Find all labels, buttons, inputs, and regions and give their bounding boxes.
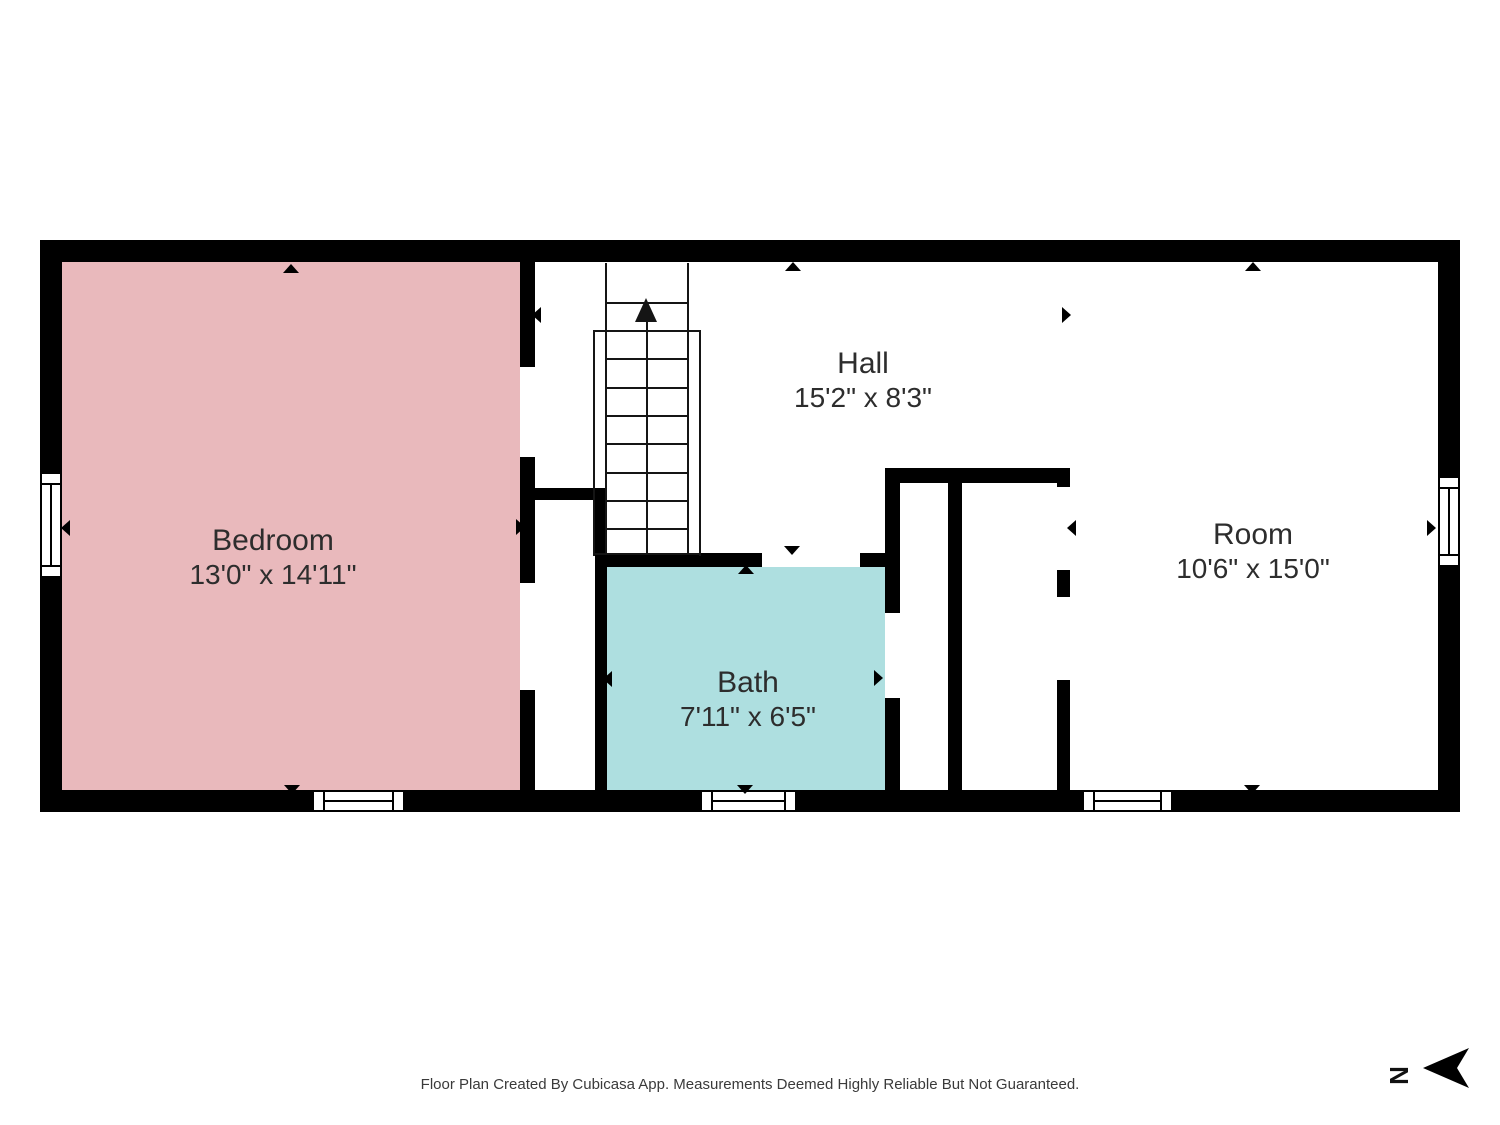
room-name: Bath — [680, 666, 816, 700]
stairs-up-arrow-icon — [635, 298, 657, 322]
room-label-bedroom: Bedroom 13'0" x 14'11" — [189, 524, 356, 592]
opening-arrow — [516, 519, 525, 535]
opening-arrow — [1427, 520, 1436, 536]
window — [312, 790, 405, 812]
window — [1082, 790, 1173, 812]
opening-arrow — [61, 520, 70, 536]
room-name: Bedroom — [189, 524, 356, 558]
room-name: Hall — [794, 347, 932, 381]
disclaimer-text: Floor Plan Created By Cubicasa App. Meas… — [0, 1076, 1500, 1093]
wall — [885, 698, 900, 790]
wall — [948, 482, 962, 790]
room-label-room: Room 10'6" x 15'0" — [1176, 518, 1330, 586]
wall — [885, 468, 900, 613]
wall — [1057, 570, 1070, 597]
room-label-bath: Bath 7'11" x 6'5" — [680, 666, 816, 734]
opening-arrow — [1062, 307, 1071, 323]
opening-arrow — [283, 264, 299, 273]
wall — [520, 690, 535, 790]
staircase — [593, 262, 701, 558]
floor-plan-page: Bedroom 13'0" x 14'11" Hall 15'2" x 8'3"… — [0, 0, 1500, 1125]
opening-arrow — [532, 307, 541, 323]
opening-arrow — [1244, 785, 1260, 794]
opening-arrow — [874, 670, 883, 686]
room-dimensions: 7'11" x 6'5" — [680, 700, 816, 734]
stairs-direction-line — [646, 320, 648, 554]
opening-arrow — [784, 546, 800, 555]
opening-arrow — [737, 785, 753, 794]
opening-arrow — [1067, 520, 1076, 536]
wall — [1057, 680, 1070, 790]
room-dimensions: 13'0" x 14'11" — [189, 558, 356, 592]
opening-arrow — [738, 565, 754, 574]
opening-arrow — [603, 671, 612, 687]
wall — [885, 468, 1070, 483]
opening-arrow — [1245, 262, 1261, 271]
wall — [1057, 468, 1070, 487]
wall — [40, 240, 1460, 262]
room-name: Room — [1176, 518, 1330, 552]
room-label-hall: Hall 15'2" x 8'3" — [794, 347, 932, 415]
compass-north-label: N — [1384, 1066, 1415, 1085]
compass-arrow-icon — [1423, 1048, 1469, 1088]
window — [1438, 476, 1460, 567]
opening-arrow — [284, 785, 300, 794]
window — [40, 472, 62, 578]
room-dimensions: 15'2" x 8'3" — [794, 381, 932, 415]
opening-arrow — [785, 262, 801, 271]
room-dimensions: 10'6" x 15'0" — [1176, 552, 1330, 586]
